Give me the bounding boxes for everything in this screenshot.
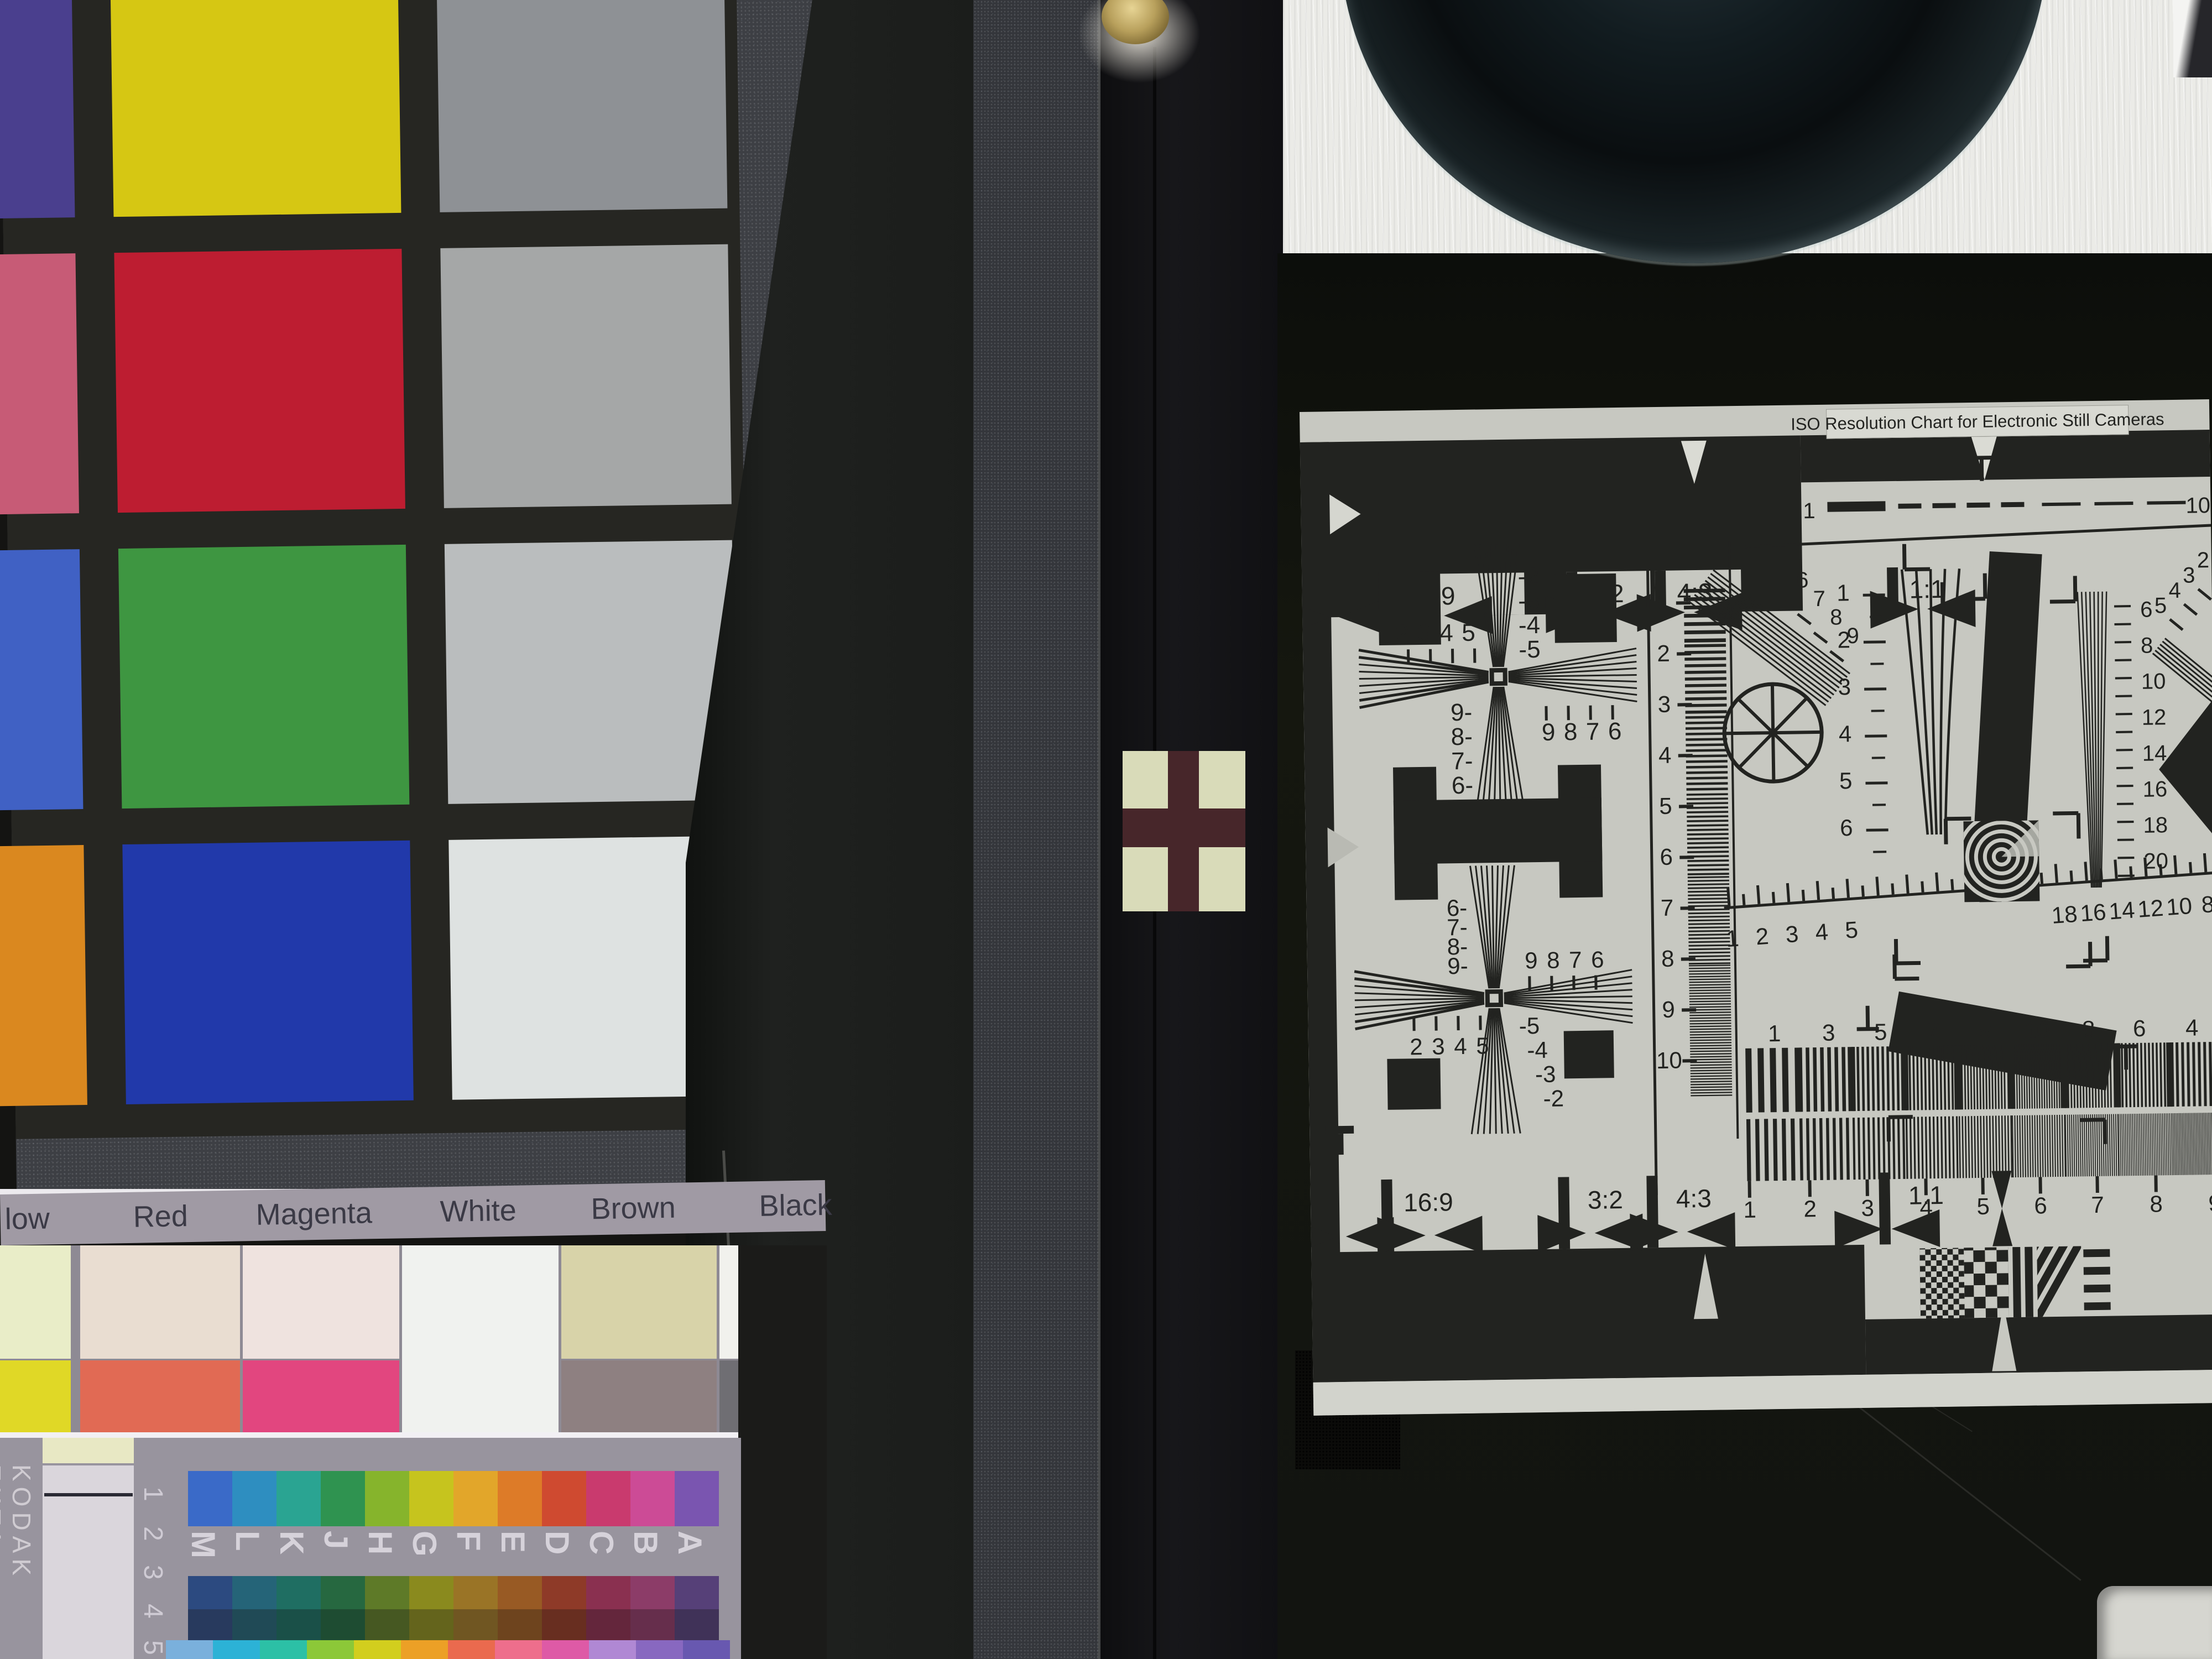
kodak-bright-bar (586, 1471, 630, 1526)
kodak-letter: H (377, 1531, 399, 1572)
dash (1966, 503, 1990, 508)
corner-diag-dash (2183, 603, 2198, 616)
barcode-line (1688, 887, 1729, 889)
ruler-line (1646, 542, 1657, 1195)
diag-dash (1797, 613, 1812, 625)
band1-stripe (1813, 1047, 1817, 1112)
kodak-dark2-bar (188, 1609, 232, 1640)
barcode-line (1688, 890, 1729, 893)
fine-scale-tick (2115, 659, 2131, 661)
band2-stripe (2096, 1114, 2098, 1176)
paint-label: Brown (591, 1191, 676, 1227)
barcode-line (1685, 670, 1726, 674)
chart-number: 6 (1608, 718, 1622, 745)
photo-scene: 16:93:24:31:116:93:24:31:11102345-2-3-4-… (0, 0, 2212, 1659)
paint-label: White (440, 1193, 517, 1229)
band1-stripe (2128, 1043, 2131, 1107)
barcode-line (1687, 846, 1729, 849)
ruler-number: 8 (1661, 946, 1674, 972)
barcode-line (1689, 984, 1731, 985)
band2-stripe (1913, 1117, 1916, 1179)
mid-ruler-tick (1891, 883, 1894, 894)
band1-number: 8 (2082, 1016, 2095, 1042)
band2-stripe (2062, 1115, 2064, 1177)
mid-ruler-tick (1786, 883, 1790, 902)
paint-patch-saturated (561, 1360, 717, 1433)
focus-square (1378, 571, 1441, 645)
band2-stripe (2193, 1113, 2194, 1175)
band2-stripe (2136, 1114, 2137, 1176)
mid-ruler-tick (1772, 892, 1775, 903)
dash (2001, 502, 2024, 508)
logo-hstripe (2084, 1285, 2110, 1293)
band2-stripe (1863, 1118, 1866, 1180)
barcode-line (1687, 811, 1728, 813)
barcode-line (1689, 995, 1731, 997)
band2-stripe (1806, 1118, 1810, 1180)
kodak-bright-bar (498, 1471, 542, 1526)
kodak-dark2-bar (675, 1609, 719, 1640)
mid-ruler-tick (2040, 873, 2043, 884)
paint-label: Red (133, 1199, 188, 1234)
wheel-spoke (1725, 733, 1773, 733)
fine-scale-tick (2115, 695, 2132, 697)
chart-number: 3 (1417, 620, 1431, 647)
band1-stripe (1782, 1048, 1789, 1112)
barcode-line (1688, 937, 1730, 940)
band2-stripe (2187, 1113, 2188, 1175)
band1-separator (1954, 1045, 1962, 1109)
kodak-sliver-bar (495, 1640, 542, 1659)
band2-stripe (2084, 1114, 2085, 1176)
kodak-chart: KODAK EKTA12345ABCDEFGHJKLM (0, 1438, 741, 1659)
kodak-number: 1 (143, 1486, 168, 1520)
band2-stripe (2092, 1114, 2094, 1176)
barcode-line (1691, 1094, 1732, 1096)
band1-stripe (1834, 1047, 1839, 1112)
band2-stripe (2164, 1113, 2166, 1175)
band1-number: 6 (2133, 1015, 2146, 1041)
barcode-line (1689, 1003, 1731, 1005)
band2-stripe (1921, 1117, 1924, 1178)
barcode-line (1689, 1011, 1731, 1013)
barcode-line (1688, 933, 1730, 936)
band2-number: 6 (2034, 1192, 2047, 1218)
iso-title: ISO Resolution Chart for Electronic Stil… (1791, 409, 2164, 434)
kodak-number: 2 (143, 1526, 168, 1559)
barcode-line (1688, 876, 1729, 878)
fine-scale-number: 16 (2142, 777, 2167, 802)
barcode-line (1685, 684, 1726, 687)
cross-sticker-vbar (1168, 751, 1199, 911)
barcode-line (1691, 1092, 1732, 1093)
band2-number: 8 (2150, 1191, 2163, 1217)
band1-stripe (2203, 1042, 2207, 1106)
kodak-bright-bar (409, 1471, 453, 1526)
band1-number: 10 (2023, 1016, 2049, 1043)
chart-number: 9 (1525, 947, 1538, 973)
corner-mark (1943, 607, 1968, 608)
band2-stripe (1995, 1116, 1997, 1178)
aspect-label-bottom: 4:3 (1676, 1184, 1712, 1213)
barcode-line (1687, 833, 1729, 836)
barcode-line (1688, 883, 1729, 885)
barcode-line (1690, 1039, 1731, 1041)
band2-stripe (2155, 1114, 2157, 1176)
band2-stripe (2024, 1115, 2026, 1177)
ruler-tick (1676, 601, 1691, 604)
band2-stripe (1833, 1118, 1837, 1180)
kodak-letter: C (598, 1531, 620, 1572)
band1-separator (1794, 1047, 1803, 1112)
kodak-dark2-bar (321, 1609, 365, 1640)
barcode-line (1689, 945, 1730, 947)
kodak-letter: L (244, 1531, 267, 1572)
wheel-spoke (1773, 732, 1807, 766)
kodak-sliver-bar (636, 1640, 683, 1659)
barcode-line (1687, 842, 1729, 844)
barcode-line (1690, 1036, 1731, 1038)
band2-stripe (2113, 1114, 2115, 1176)
chart-number: 7 (1586, 718, 1600, 745)
kodak-bright-bar (276, 1471, 321, 1526)
mid-ruler-tick (1905, 874, 1909, 893)
scale-tick (1872, 757, 1885, 759)
mid-ruler-tick (2203, 853, 2207, 872)
kodak-letter: D (554, 1531, 576, 1572)
barcode-line (1689, 967, 1730, 969)
barcode-line (1687, 851, 1729, 853)
barcode-line (1690, 1034, 1731, 1035)
band2-tick (1865, 1180, 1869, 1196)
ruler-number: 1 (1656, 589, 1670, 615)
band1-separator (1848, 1047, 1856, 1111)
band2-stripe (2153, 1114, 2155, 1176)
fine-scale-tick (2115, 677, 2132, 679)
barcode-line (1688, 898, 1729, 900)
chart-number: -5 (1519, 1013, 1540, 1039)
right-scale-number: 5 (1839, 768, 1853, 794)
bowtie-arrow-bottom (1687, 1212, 1735, 1250)
corner-mark (1945, 819, 1946, 844)
iso-chart-graphics: 16:93:24:31:116:93:24:31:11102345-2-3-4-… (1300, 399, 2212, 1416)
kodak-dark1-bar (630, 1576, 675, 1609)
corner-mark (1895, 978, 1919, 979)
band2-stripe (2157, 1113, 2158, 1175)
logo-hstripe (2084, 1302, 2111, 1311)
corner-mark (2078, 813, 2079, 838)
corner-diag-number: 5 (2154, 593, 2167, 618)
band2-stripe (2132, 1114, 2133, 1176)
right-scale-number: 6 (1840, 815, 1853, 841)
barcode-line (1690, 1058, 1731, 1060)
kodak-dark2-bar (630, 1609, 675, 1640)
barcode-line (1690, 1025, 1731, 1027)
tick (1528, 976, 1531, 990)
corner-diag-dash (2169, 618, 2183, 631)
scale-dash (1865, 734, 1887, 738)
band2-stripe (2111, 1114, 2112, 1176)
kodak-letter: G (421, 1531, 444, 1572)
band2-stripe (1925, 1117, 1928, 1178)
band2-stripe (1968, 1116, 1970, 1178)
band2-stripe (2173, 1113, 2174, 1175)
t-mark (1981, 458, 1982, 481)
scale-dash (1865, 781, 1887, 785)
right-scale-number: 2 (1837, 627, 1850, 653)
barcode-line (1687, 864, 1729, 867)
scale-dash (1866, 828, 1888, 832)
charcoal-divider-strip (973, 0, 1100, 1659)
band1-number: 1 (1768, 1020, 1781, 1046)
barcode-line (1691, 1064, 1732, 1066)
tick (1429, 649, 1432, 664)
paint-patch-saturated (0, 1360, 71, 1433)
diag-number: 8 (1830, 605, 1843, 629)
band2-stripe (2210, 1113, 2211, 1175)
fine-scale-number: 14 (2142, 741, 2167, 766)
band2-stripe (1944, 1117, 1947, 1178)
chart-number: -3 (1518, 587, 1540, 615)
mid-ruler-tick (1875, 877, 1879, 895)
kodak-sliver-bar (683, 1640, 730, 1659)
band2-stripe (1980, 1116, 1982, 1178)
paint-patch-saturated (243, 1360, 399, 1433)
barcode-line (1686, 760, 1728, 763)
paint-patch-pale (0, 1245, 71, 1359)
fine-scale-number: 18 (2143, 813, 2168, 838)
band2-stripe (1755, 1119, 1760, 1181)
band2-stripe (2146, 1114, 2148, 1176)
barcode-line (1688, 901, 1729, 904)
band2-stripe (1952, 1117, 1955, 1178)
ruler-number: 5 (1659, 793, 1672, 819)
fine-checkerboard (1919, 1248, 1965, 1318)
band1-stripe (1896, 1046, 1900, 1110)
checker-patch (440, 244, 732, 508)
band2-number: 5 (1976, 1193, 1990, 1219)
band2-tick (1747, 1181, 1751, 1198)
kodak-dark2-bar (453, 1609, 498, 1640)
chart-number: -4 (1519, 612, 1541, 639)
chart-number: 7 (1569, 947, 1582, 973)
towel-corner (2097, 1586, 2212, 1659)
corner-mark (1942, 582, 1943, 608)
fine-scale-tick (2116, 731, 2132, 733)
band2-stripe (2204, 1113, 2205, 1175)
scale-tick (1870, 662, 1884, 665)
kodak-dark2-bar (586, 1609, 630, 1640)
band1-stripe (2136, 1043, 2139, 1107)
notch-bar-bottom (1879, 1172, 1891, 1244)
patch-bottom-line (0, 1432, 825, 1438)
mid-ruler-number: 4 (1814, 919, 1829, 946)
kodak-dark2-bar (409, 1609, 453, 1640)
tick (1457, 1016, 1459, 1030)
barcode-line (1689, 962, 1730, 964)
checker-patch (0, 253, 79, 517)
band2-stripe (2073, 1115, 2075, 1177)
barcode-line (1687, 824, 1728, 827)
band2-stripe (2094, 1114, 2096, 1176)
barcode-line (1684, 644, 1726, 647)
ruler-number: 4 (1658, 742, 1672, 768)
band2-stripe (2182, 1113, 2183, 1175)
band2-stripe (2067, 1115, 2069, 1177)
fine-scale-number: 12 (2142, 705, 2167, 730)
band2-stripe (2162, 1113, 2164, 1175)
wedge-cross-lower-center (1490, 994, 1499, 1003)
chart-number: -4 (1527, 1037, 1548, 1063)
tick (1594, 975, 1597, 990)
band2-stripe (2167, 1113, 2169, 1175)
scale-tick (1873, 851, 1886, 853)
barcode-line (1684, 630, 1726, 634)
kodak-dark2-bar (542, 1609, 586, 1640)
kodak-bright-bar (630, 1471, 675, 1526)
dark-fill-right-of-kodak (738, 1245, 827, 1659)
band2-stripe (2071, 1115, 2073, 1177)
band2-stripe (2109, 1114, 2111, 1176)
band1-stripe (2144, 1043, 2147, 1107)
barcode-line (1687, 855, 1729, 858)
kodak-dark2-bar (232, 1609, 276, 1640)
band1-separator (2113, 1043, 2121, 1107)
band2-stripe (1989, 1116, 1991, 1178)
tick (1550, 976, 1553, 990)
kodak-bright-bar (542, 1471, 586, 1526)
ruler-number: 9 (1662, 997, 1675, 1022)
band2-stripe (2039, 1115, 2041, 1177)
fine-scale-number: 20 (2143, 849, 2168, 874)
tick (1611, 705, 1614, 719)
kodak-letter: E (510, 1531, 532, 1572)
fine-scale-tick (2116, 749, 2133, 751)
band2-stripe (2079, 1114, 2081, 1176)
band2-stripe (1782, 1119, 1787, 1181)
mid-ruler-tick (1935, 873, 1939, 891)
chart-number: 6 (1591, 946, 1604, 972)
fine-scale-number: 8 (2141, 633, 2153, 658)
kodak-dark1-bar (232, 1576, 276, 1609)
focus-square (1564, 1030, 1614, 1078)
kodak-number: 3 (143, 1565, 168, 1598)
corner-mark (2083, 961, 2107, 961)
tick (1407, 649, 1410, 664)
band2-stripe (1858, 1118, 1861, 1180)
band1-separator (1901, 1046, 1909, 1110)
band1-stripe (1827, 1047, 1832, 1112)
barcode-line (1689, 1017, 1731, 1019)
fine-scale-tick (2116, 713, 2132, 715)
corner-mark (1904, 544, 1905, 570)
mid-ruler-tick (2114, 859, 2117, 878)
band2-stripe (2189, 1113, 2191, 1175)
band2-stripe (2180, 1113, 2182, 1175)
band1-stripe (2156, 1042, 2158, 1107)
kodak-letter: M (200, 1531, 222, 1572)
band2-stripe (1846, 1118, 1850, 1180)
band2-stripe (2022, 1115, 2024, 1177)
scale-tick (1870, 615, 1883, 618)
band2-tick (2038, 1177, 2042, 1193)
band2-stripe (2128, 1114, 2130, 1176)
t-mark (1867, 1006, 1868, 1029)
dash (1898, 503, 1921, 509)
barcode-line (1687, 815, 1728, 818)
band2-stripe (1910, 1117, 1912, 1179)
band2-stripe (1892, 1117, 1896, 1179)
barcode-line (1685, 690, 1726, 693)
kodak-dark1-bar (675, 1576, 719, 1609)
fine-scale-tick (2117, 785, 2133, 787)
barcode-line (1686, 771, 1728, 774)
wedge-cross-lower (1355, 998, 1484, 1000)
focus-square (1387, 1058, 1441, 1110)
barcode-line (1684, 638, 1726, 643)
band2-tick (2154, 1175, 2157, 1192)
kodak-bright-bar (453, 1471, 498, 1526)
band2-stripe (1961, 1116, 1964, 1178)
fine-scale-tick (2116, 767, 2133, 769)
band2-stripe (1826, 1118, 1830, 1180)
band2-number: 2 (1803, 1196, 1817, 1222)
kodak-dark1-bar (498, 1576, 542, 1609)
corner-mark (1960, 599, 1985, 599)
kodak-bright-bar (365, 1471, 409, 1526)
kodak-letter: K (289, 1531, 311, 1572)
paint-patch-saturated (80, 1360, 240, 1433)
barcode-line (1686, 710, 1727, 713)
h-beam-bar (1394, 797, 1603, 864)
barcode-line (1691, 1089, 1732, 1091)
band2-stripe (1799, 1118, 1803, 1180)
dash-thin (2094, 502, 2133, 505)
mid-ruler-tick (1861, 885, 1864, 896)
kodak-dark1-bar (453, 1576, 498, 1609)
chart-number: 9- (1447, 953, 1468, 979)
band2-number: 1 (1743, 1197, 1756, 1223)
band2-stripe (1948, 1117, 1951, 1178)
tick (1572, 975, 1575, 990)
chart-number: 5 (1462, 619, 1475, 646)
band2-stripe (2123, 1114, 2125, 1176)
barcode-line (1689, 948, 1730, 950)
paint-patch-rows (0, 1245, 825, 1433)
band2-stripe (2044, 1115, 2046, 1177)
edge-t-mark (1335, 1134, 1344, 1155)
chart-number: 2 (1395, 620, 1409, 647)
barcode-line (1688, 880, 1729, 882)
band2-stripe (2032, 1115, 2034, 1177)
kodak-letter: F (466, 1531, 488, 1572)
colorchecker-grid (0, 0, 753, 1139)
barcode-line (1689, 981, 1730, 983)
chart-number: 2 (1410, 1034, 1423, 1060)
barcode-line (1689, 975, 1730, 977)
aspect-label-bottom: 16:9 (1404, 1187, 1453, 1217)
dash-thick (1827, 501, 1885, 512)
dash (1932, 503, 1955, 508)
wheel-spoke (1739, 733, 1773, 767)
scale-dash (1864, 640, 1886, 644)
band1-stripe (2152, 1043, 2154, 1107)
barcode-line (1690, 1042, 1731, 1044)
band2-stripe (2130, 1114, 2132, 1176)
iso-chart-paper: 16:93:24:31:116:93:24:31:11102345-2-3-4-… (1300, 399, 2212, 1416)
band2-stripe (2052, 1115, 2054, 1177)
fine-wedge-line (2093, 592, 2098, 888)
